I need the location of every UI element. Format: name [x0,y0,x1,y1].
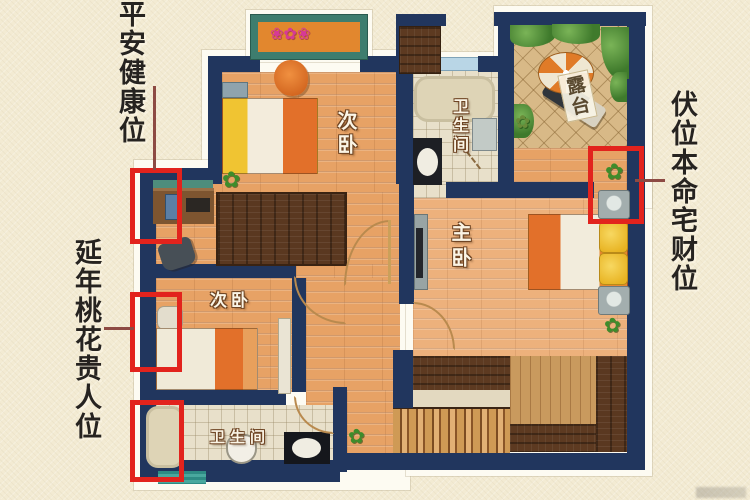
room-label-master: 主卧 [446,222,475,272]
plant-icon: ✿ [348,426,365,446]
highlight-wealth-position [588,146,644,224]
highlight-health-position [130,168,182,244]
annotation-wealth: 伏位本命宅财位 [662,90,701,300]
highlight-romance-position-2 [130,400,184,482]
pillow [599,253,628,285]
tv [416,228,423,278]
door-leaf [388,220,391,284]
window [438,57,480,71]
watermark-smudge [696,487,746,498]
wall [333,453,645,470]
leader-line [153,86,156,170]
wall [478,56,500,72]
radiator [278,318,291,394]
shrub [552,24,600,44]
sink [417,148,438,176]
staircase [393,407,510,455]
floor-dark-bottom [510,424,596,452]
pillow [599,221,628,253]
wall [208,56,222,182]
leader-line [635,179,665,182]
highlight-romance-position [130,292,182,372]
shower-unit [472,118,497,151]
wall [396,14,446,26]
annotation-health: 平安健康位 [110,0,149,160]
floor-wood-right [510,356,596,424]
wardrobe [216,192,347,266]
wall [393,350,413,408]
wall-art [222,82,248,98]
wall [399,182,414,304]
annotation-romance: 延年桃花贵人位 [66,238,105,448]
feng-shui-floorplan: ❀✿❀ ✿ ✿ ✿ ✿ ✿ 次卧 次卧 主卧 卫 [0,0,750,500]
wall [627,196,645,462]
wall [446,182,594,198]
room-label-bathroom-bottom: 卫生间 [210,426,270,447]
sink [292,438,321,458]
flowers-icon: ❀✿❀ [270,24,310,43]
nightstand [598,286,630,315]
plant-icon: ✿ [222,170,240,192]
bed-bedroom-top [222,98,318,174]
shrub [610,72,627,102]
room-label-bedroom-left: 次卧 [210,286,252,311]
room-label-bedroom-top: 次卧 [332,110,361,158]
plant-icon: ✿ [515,114,530,132]
plant-icon: ✿ [604,315,621,335]
armchair [274,60,308,96]
step-cabinet [399,26,441,74]
leader-line [104,327,134,330]
floor-dark-right [596,356,627,452]
floor-landing [413,356,510,390]
desk-item [186,198,210,212]
room-label-bathroom-top: 卫生间 [447,98,471,155]
